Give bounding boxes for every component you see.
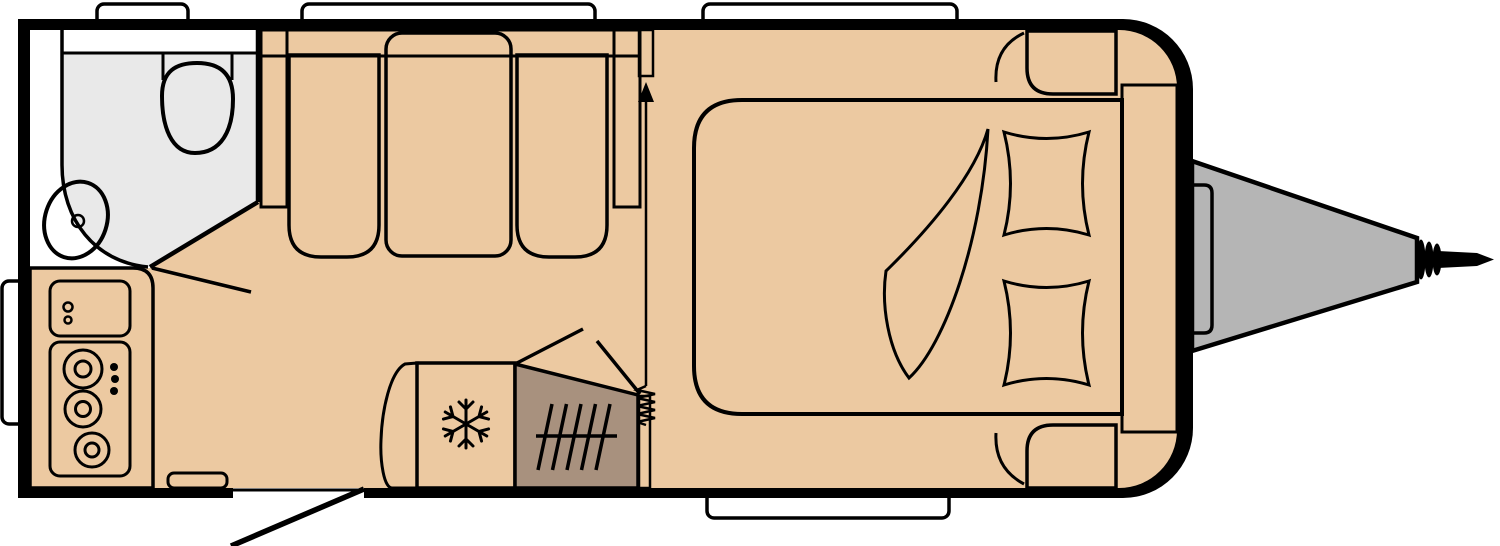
floorplan-canvas [0,0,1500,546]
caravan-floorplan [0,0,1500,546]
knob-3 [110,387,118,395]
hob-knobs [110,363,119,395]
coupling-bellows-2 [1425,242,1434,278]
a-frame-drawbar [1192,161,1494,351]
drawbar-triangle [1192,161,1417,351]
hitch-coupling [1417,240,1495,280]
knob-1 [110,363,118,371]
knob-2 [111,375,119,383]
coupling-handle [1438,251,1494,268]
coupling-bellows-1 [1417,240,1426,280]
